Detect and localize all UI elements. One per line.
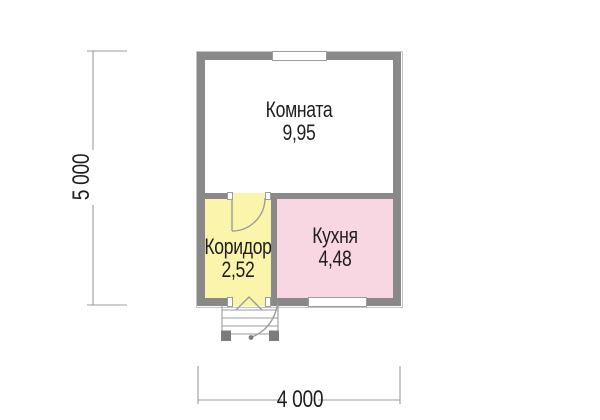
dimension-label-width: 4 000 bbox=[268, 387, 332, 413]
room-name: Кухня bbox=[287, 224, 383, 247]
entrance-door-pivot-dot bbox=[249, 335, 254, 340]
room-area: 4,48 bbox=[287, 247, 383, 270]
room-label-koridor: Коридор 2,52 bbox=[190, 235, 286, 281]
room-name: Комната bbox=[251, 98, 347, 121]
porch-post-right bbox=[269, 331, 279, 342]
room-area: 2,52 bbox=[190, 258, 286, 281]
room-label-kuhnya: Кухня 4,48 bbox=[287, 224, 383, 270]
room-label-komnata: Комната 9,95 bbox=[251, 98, 347, 144]
dimension-label-height: 5 000 bbox=[69, 149, 95, 205]
interior-door-swing-arc bbox=[232, 198, 265, 231]
porch-post-left bbox=[221, 331, 231, 342]
porch-steps bbox=[222, 310, 278, 334]
entrance-door-leaf bbox=[236, 297, 262, 310]
floor-plan: Комната 9,95 Коридор 2,52 Кухня 4,48 5 0… bbox=[0, 0, 600, 420]
room-area: 9,95 bbox=[251, 121, 347, 144]
room-name: Коридор bbox=[190, 235, 286, 258]
plan-linework bbox=[0, 0, 600, 420]
